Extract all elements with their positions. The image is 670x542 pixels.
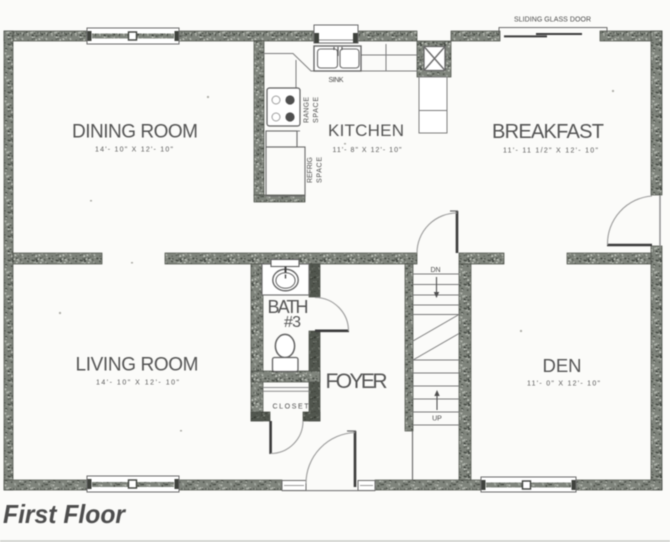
svg-text:LIVING ROOM: LIVING ROOM	[76, 355, 199, 376]
svg-text:11'- 0" X 12'- 10": 11'- 0" X 12'- 10"	[527, 381, 601, 388]
svg-text:CLOSET: CLOSET	[273, 404, 310, 411]
svg-text:DN: DN	[430, 267, 440, 274]
svg-text:KITCHEN: KITCHEN	[328, 121, 404, 140]
svg-text:BREAKFAST: BREAKFAST	[492, 121, 604, 143]
svg-text:DINING ROOM: DINING ROOM	[72, 122, 198, 143]
svg-text:11'- 8" X 12'- 10": 11'- 8" X 12'- 10"	[333, 147, 403, 154]
svg-text:#3: #3	[284, 314, 301, 331]
svg-text:SPACE: SPACE	[317, 157, 324, 183]
svg-text:First Floor: First Floor	[3, 499, 127, 529]
svg-text:DEN: DEN	[543, 355, 582, 376]
svg-text:REFRIG: REFRIG	[307, 157, 314, 183]
svg-text:SPACE: SPACE	[313, 97, 320, 123]
svg-text:UP: UP	[432, 416, 442, 423]
svg-text:SLIDING GLASS DOOR: SLIDING GLASS DOOR	[514, 17, 591, 24]
svg-text:SINK: SINK	[329, 77, 344, 84]
svg-text:RANGE: RANGE	[304, 97, 311, 123]
svg-text:FOYER: FOYER	[326, 370, 388, 393]
svg-text:14'- 10" X 12'- 10": 14'- 10" X 12'- 10"	[96, 380, 180, 387]
svg-text:11'- 11 1/2" X 12'- 10": 11'- 11 1/2" X 12'- 10"	[503, 148, 599, 155]
svg-text:14'- 10" X 12'- 10": 14'- 10" X 12'- 10"	[95, 147, 174, 154]
